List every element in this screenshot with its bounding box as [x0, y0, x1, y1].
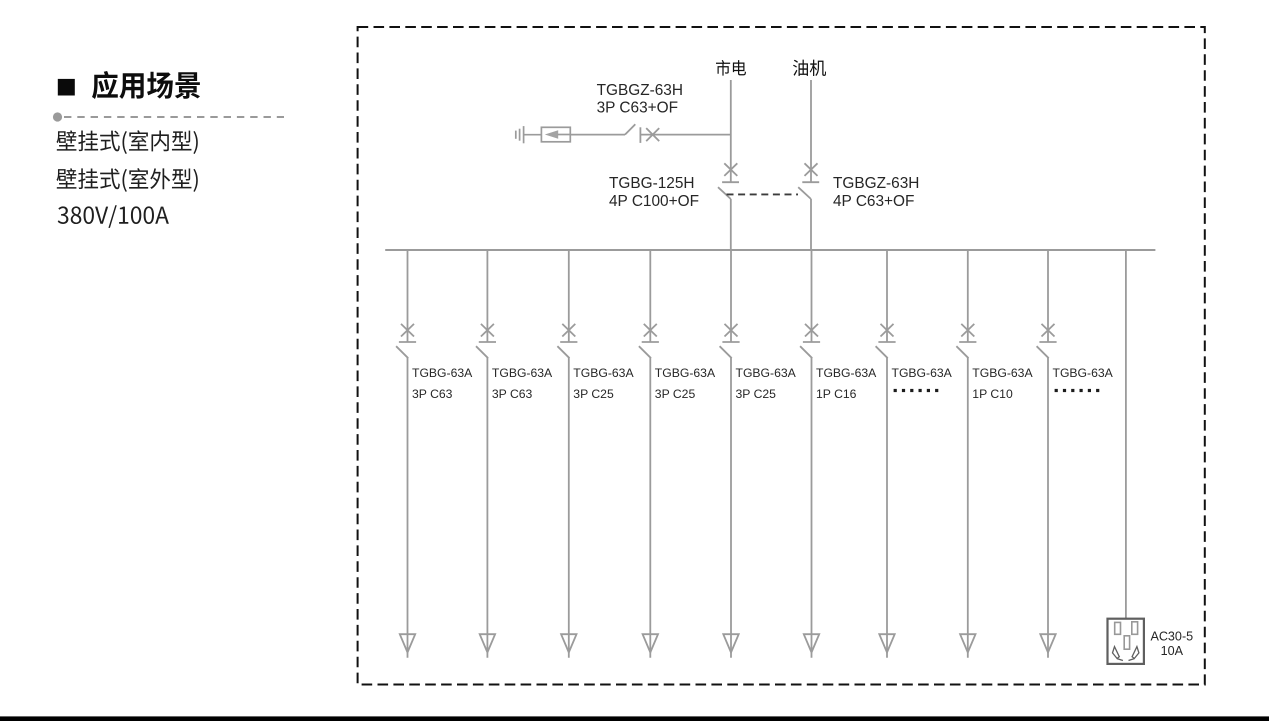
svg-text:3P C63: 3P C63 [412, 387, 453, 401]
svg-text:TGBG-125H: TGBG-125H [609, 175, 695, 192]
svg-text:TGBG-63A: TGBG-63A [492, 366, 553, 380]
svg-text:3P C25: 3P C25 [573, 387, 614, 401]
svg-text:TGBGZ-63H: TGBGZ-63H [597, 82, 683, 99]
svg-text:3P C25: 3P C25 [736, 387, 777, 401]
svg-text:TGBG-63A: TGBG-63A [1053, 366, 1114, 380]
svg-text:TGBG-63A: TGBG-63A [573, 366, 634, 380]
svg-text:3P C63: 3P C63 [492, 387, 533, 401]
svg-text:TGBG-63A: TGBG-63A [972, 366, 1033, 380]
svg-text:TGBG-63A: TGBG-63A [892, 366, 953, 380]
svg-text:AC30-5: AC30-5 [1150, 630, 1193, 644]
svg-text:1P C10: 1P C10 [972, 387, 1013, 401]
svg-text:3P C63+OF: 3P C63+OF [597, 99, 678, 116]
svg-text:TGBG-63A: TGBG-63A [655, 366, 716, 380]
svg-text:4P C63+OF: 4P C63+OF [833, 193, 914, 210]
svg-text:10A: 10A [1161, 644, 1184, 658]
svg-text:1P C16: 1P C16 [816, 387, 857, 401]
svg-text:4P C100+OF: 4P C100+OF [609, 193, 699, 210]
svg-text:TGBG-63A: TGBG-63A [816, 366, 877, 380]
svg-text:3P C25: 3P C25 [655, 387, 696, 401]
svg-text:TGBGZ-63H: TGBGZ-63H [833, 175, 919, 192]
svg-text:TGBG-63A: TGBG-63A [736, 366, 797, 380]
svg-text:TGBG-63A: TGBG-63A [412, 366, 473, 380]
